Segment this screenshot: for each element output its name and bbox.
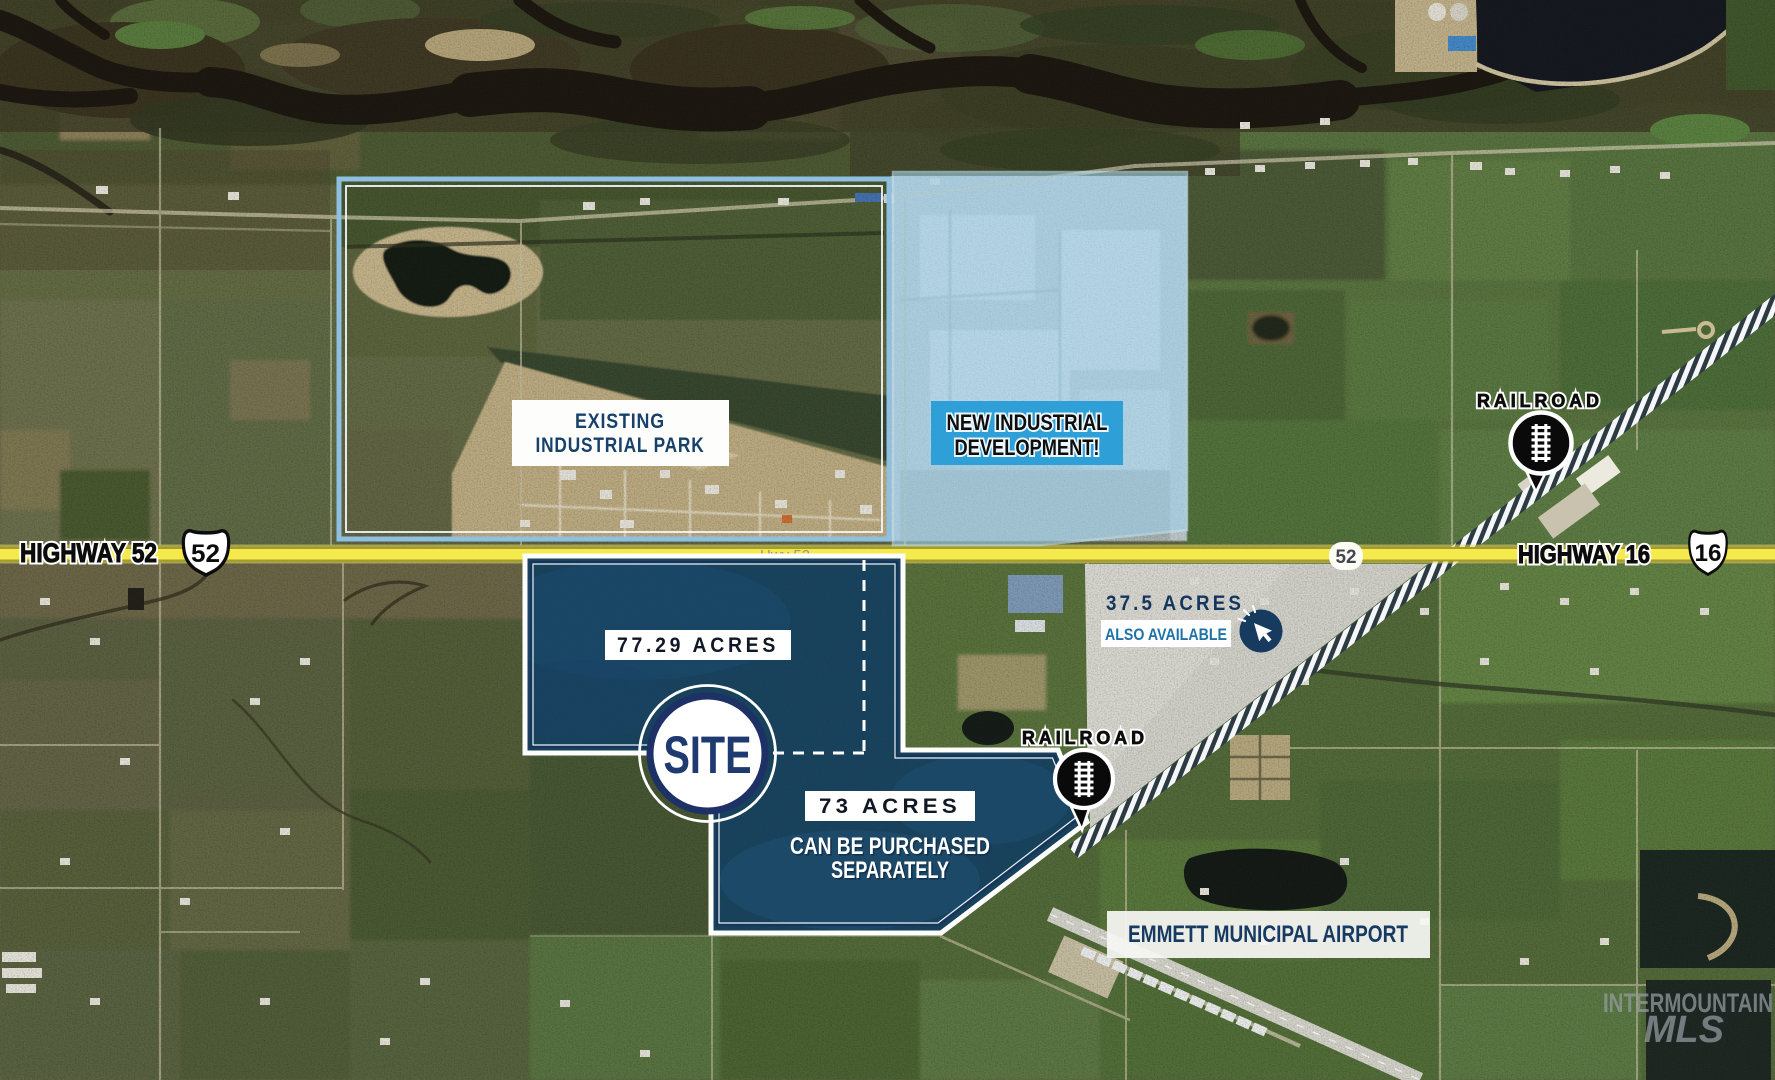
svg-text:RAILROAD: RAILROAD: [1477, 391, 1603, 411]
svg-text:ALSO AVAILABLE: ALSO AVAILABLE: [1105, 625, 1227, 644]
svg-text:SITE: SITE: [664, 726, 752, 785]
svg-text:HIGHWAY 52: HIGHWAY 52: [20, 538, 157, 568]
svg-text:SEPARATELY: SEPARATELY: [831, 857, 949, 884]
svg-text:EXISTING: EXISTING: [575, 410, 665, 433]
svg-text:16: 16: [1695, 540, 1722, 567]
svg-text:DEVELOPMENT!: DEVELOPMENT!: [955, 435, 1100, 460]
svg-text:52: 52: [1336, 547, 1357, 568]
svg-text:52: 52: [191, 540, 220, 568]
svg-text:73 ACRES: 73 ACRES: [819, 795, 961, 818]
svg-text:EMMETT MUNICIPAL AIRPORT: EMMETT MUNICIPAL AIRPORT: [1128, 921, 1408, 948]
svg-text:77.29 ACRES: 77.29 ACRES: [617, 634, 779, 657]
svg-text:37.5 ACRES: 37.5 ACRES: [1106, 592, 1244, 615]
svg-text:CAN BE PURCHASED: CAN BE PURCHASED: [790, 833, 990, 860]
svg-text:MLS: MLS: [1644, 1009, 1724, 1051]
svg-text:RAILROAD: RAILROAD: [1022, 728, 1148, 748]
svg-text:NEW INDUSTRIAL: NEW INDUSTRIAL: [947, 410, 1108, 435]
svg-text:HIGHWAY 16: HIGHWAY 16: [1518, 541, 1650, 569]
svg-text:INDUSTRIAL PARK: INDUSTRIAL PARK: [536, 434, 705, 457]
